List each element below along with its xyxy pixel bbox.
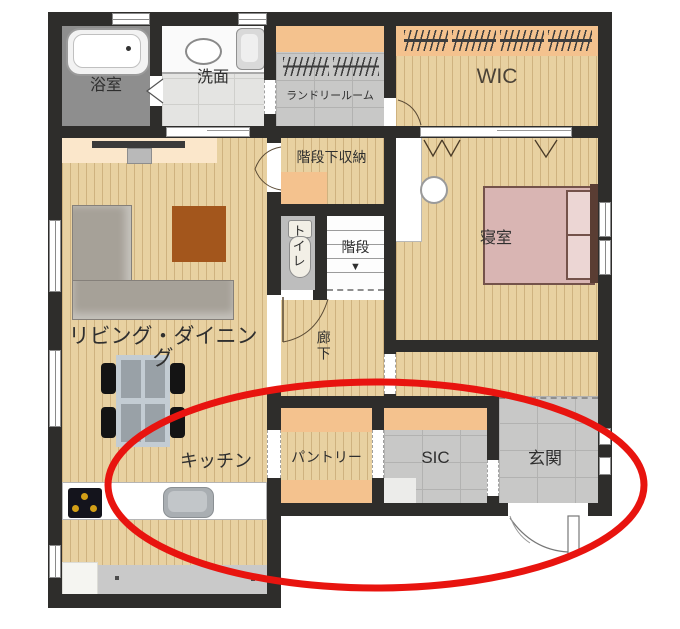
window <box>599 457 611 475</box>
burner-icon <box>72 505 79 512</box>
chair <box>170 407 185 438</box>
wall <box>48 594 281 608</box>
window <box>49 545 61 578</box>
wall <box>313 290 327 300</box>
window <box>599 202 611 237</box>
entrance-step-line <box>499 394 598 399</box>
kitchen-sink <box>163 487 214 518</box>
room-label-corridor: 廊下 <box>316 330 331 362</box>
door-opening <box>267 295 281 390</box>
pantry-shelf-bottom <box>279 480 372 503</box>
room-label-bedroom: 寝室 <box>446 231 546 248</box>
room-label-bathroom: 浴室 <box>70 78 142 95</box>
sliding-door <box>166 127 250 137</box>
room-label-pantry: パントリー <box>281 450 372 465</box>
washing-machine <box>236 28 265 70</box>
wall <box>48 12 62 608</box>
window <box>238 13 267 25</box>
room-label-wic: WIC <box>396 66 598 88</box>
entrance-door-leaf <box>568 516 579 554</box>
stair-tread <box>327 230 384 231</box>
tv <box>92 141 185 148</box>
window <box>49 350 61 427</box>
storage-shelf <box>281 172 327 204</box>
stairs-cut-line <box>327 286 384 291</box>
room-label-storage: 階段下収納 <box>279 150 384 165</box>
pillow <box>566 190 592 236</box>
floor-plan: 浴室 洗面 ランドリールーム WIC 階段下収納 トイレ 階段 ▼ 寝室 リビン… <box>0 0 680 629</box>
door-opening <box>372 430 384 478</box>
hanger-rod-icon <box>283 57 329 76</box>
laundry-counter <box>276 26 384 52</box>
drain-icon <box>126 46 131 51</box>
rug <box>172 206 226 262</box>
room-label-toilet: トイレ <box>291 224 305 269</box>
wall <box>315 216 327 298</box>
door-opening <box>281 290 313 300</box>
room-label-laundry: ランドリールーム <box>277 91 383 103</box>
window <box>112 13 150 25</box>
room-label-entrance: 玄関 <box>499 450 591 468</box>
wall <box>487 396 499 460</box>
low-bench <box>98 565 270 596</box>
pantry-shelf-top <box>279 408 372 432</box>
hall-floor <box>396 352 598 396</box>
sic-step <box>384 478 416 503</box>
room-label-washroom: 洗面 <box>175 70 251 87</box>
stove <box>68 488 102 518</box>
lamp-icon <box>420 176 448 204</box>
hanger-rod-icon <box>500 30 544 51</box>
hanger-rod-icon <box>404 30 448 51</box>
entrance-door-opening <box>508 503 588 516</box>
pillow <box>566 234 592 280</box>
door-opening <box>384 354 396 394</box>
chair <box>101 407 116 438</box>
hanger-rod-icon <box>548 30 592 51</box>
door-opening <box>384 98 396 126</box>
door-opening <box>487 460 499 496</box>
window <box>599 428 611 445</box>
door-opening <box>150 76 162 106</box>
step-storage <box>62 562 98 596</box>
sofa <box>72 280 234 320</box>
stair-tread <box>327 258 384 259</box>
hanger-rod-icon <box>452 30 496 51</box>
room-label-stairs: 階段 <box>327 240 384 255</box>
door-opening <box>267 430 281 478</box>
door-swing-arc <box>510 518 568 552</box>
bathtub <box>66 28 150 76</box>
burner-icon <box>81 493 88 500</box>
wall <box>384 340 612 352</box>
burner-icon <box>90 505 97 512</box>
window <box>49 220 61 292</box>
wall <box>267 204 396 216</box>
stairs-down-arrow-icon: ▼ <box>327 262 384 274</box>
wash-basin <box>185 38 222 65</box>
room-label-sic: SIC <box>384 449 487 467</box>
window <box>599 240 611 275</box>
door-opening <box>264 80 276 114</box>
sic-shelf <box>384 408 487 430</box>
tv-stand <box>127 148 152 164</box>
sliding-door <box>420 127 572 137</box>
wall <box>487 496 499 516</box>
room-label-kitchen: キッチン <box>180 452 252 471</box>
door-swing-arc <box>510 516 530 543</box>
hanger-rod-icon <box>333 57 379 76</box>
room-label-living-dining: リビング・ダイニング <box>64 326 262 370</box>
